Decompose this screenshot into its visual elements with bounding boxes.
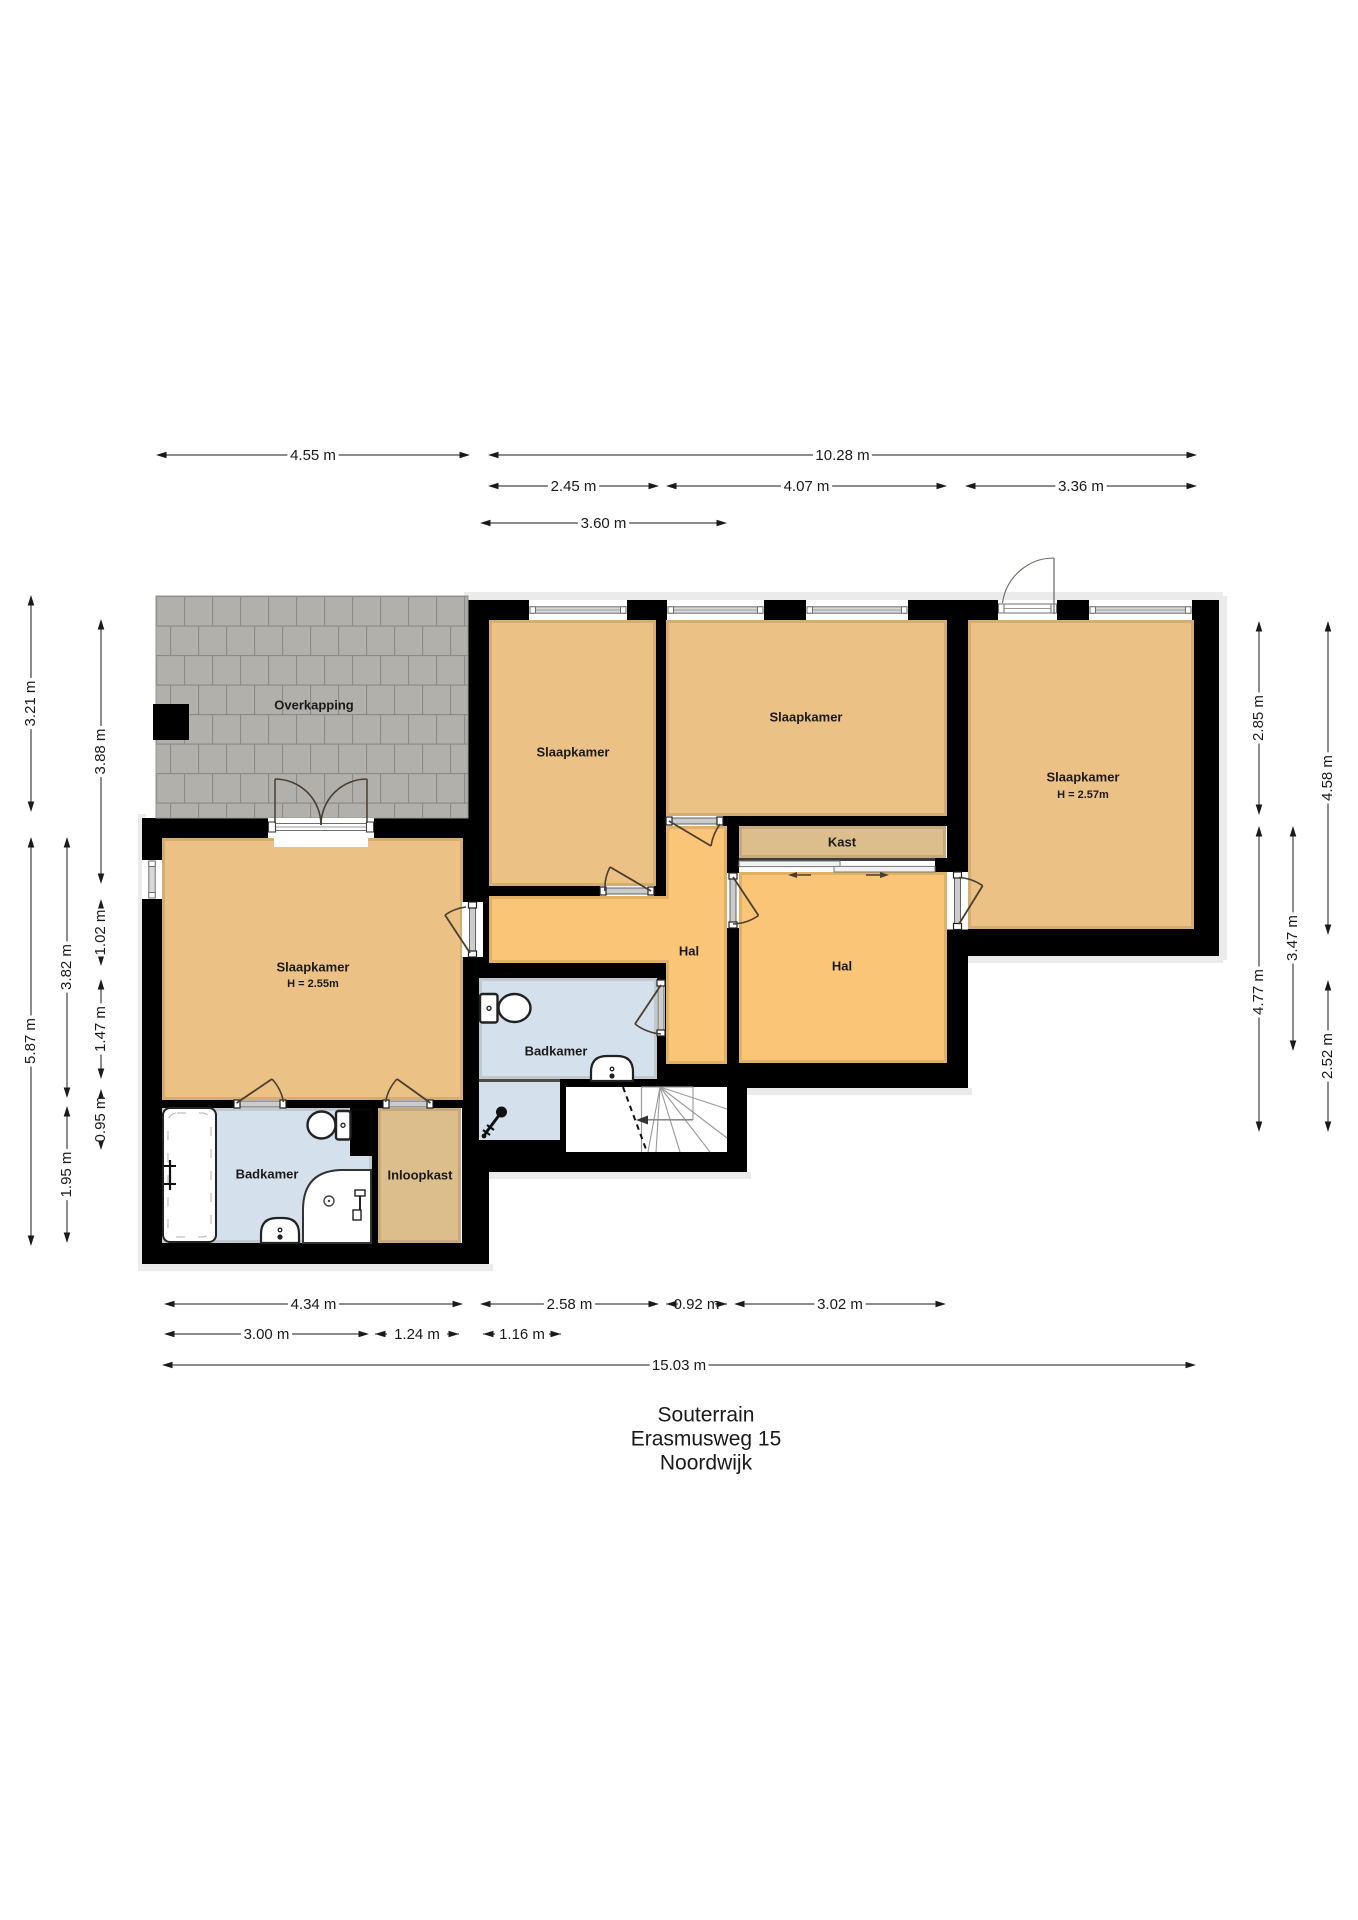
svg-text:Hal: Hal bbox=[679, 943, 699, 958]
svg-text:1.02 m: 1.02 m bbox=[92, 910, 109, 956]
svg-text:Erasmusweg 15: Erasmusweg 15 bbox=[631, 1428, 782, 1451]
svg-text:3.82 m: 3.82 m bbox=[58, 944, 75, 990]
svg-text:4.07 m: 4.07 m bbox=[784, 478, 830, 495]
svg-text:4.34 m: 4.34 m bbox=[291, 1296, 337, 1313]
svg-text:Kast: Kast bbox=[828, 834, 857, 849]
svg-text:15.03 m: 15.03 m bbox=[652, 1357, 706, 1374]
svg-text:2.85 m: 2.85 m bbox=[1250, 695, 1267, 741]
svg-text:4.77 m: 4.77 m bbox=[1250, 969, 1267, 1015]
svg-text:4.55 m: 4.55 m bbox=[290, 447, 336, 464]
svg-text:Badkamer: Badkamer bbox=[525, 1043, 588, 1058]
svg-text:3.00 m: 3.00 m bbox=[244, 1326, 290, 1343]
svg-text:2.45 m: 2.45 m bbox=[551, 478, 597, 495]
svg-text:3.88 m: 3.88 m bbox=[92, 729, 109, 775]
svg-text:Slaapkamer: Slaapkamer bbox=[537, 744, 610, 759]
svg-text:H = 2.55m: H = 2.55m bbox=[287, 978, 339, 990]
svg-text:1.95 m: 1.95 m bbox=[58, 1152, 75, 1198]
svg-text:4.58 m: 4.58 m bbox=[1319, 755, 1336, 801]
svg-text:Inloopkast: Inloopkast bbox=[387, 1167, 453, 1182]
svg-text:0.95 m: 0.95 m bbox=[92, 1097, 109, 1143]
svg-text:1.47 m: 1.47 m bbox=[92, 1006, 109, 1052]
svg-text:3.36 m: 3.36 m bbox=[1058, 478, 1104, 495]
svg-text:3.60 m: 3.60 m bbox=[581, 515, 627, 532]
svg-text:3.47 m: 3.47 m bbox=[1284, 915, 1301, 961]
svg-text:H = 2.57m: H = 2.57m bbox=[1057, 789, 1109, 801]
svg-text:1.16 m: 1.16 m bbox=[499, 1326, 545, 1343]
svg-text:3.02 m: 3.02 m bbox=[817, 1296, 863, 1313]
svg-text:1.24 m: 1.24 m bbox=[394, 1326, 440, 1343]
svg-text:Noordwijk: Noordwijk bbox=[660, 1452, 753, 1475]
svg-text:Souterrain: Souterrain bbox=[658, 1404, 755, 1427]
svg-text:5.87 m: 5.87 m bbox=[22, 1018, 39, 1064]
svg-text:10.28 m: 10.28 m bbox=[815, 447, 869, 464]
svg-text:2.58 m: 2.58 m bbox=[547, 1296, 593, 1313]
svg-text:Slaapkamer: Slaapkamer bbox=[1047, 769, 1120, 784]
svg-text:Slaapkamer: Slaapkamer bbox=[277, 959, 350, 974]
svg-text:Badkamer: Badkamer bbox=[236, 1166, 299, 1181]
svg-text:2.52 m: 2.52 m bbox=[1319, 1033, 1336, 1079]
svg-text:Slaapkamer: Slaapkamer bbox=[770, 709, 843, 724]
svg-text:Hal: Hal bbox=[832, 958, 852, 973]
svg-text:Overkapping: Overkapping bbox=[274, 697, 354, 712]
svg-text:0.92 m: 0.92 m bbox=[674, 1296, 720, 1313]
svg-text:3.21 m: 3.21 m bbox=[22, 681, 39, 727]
